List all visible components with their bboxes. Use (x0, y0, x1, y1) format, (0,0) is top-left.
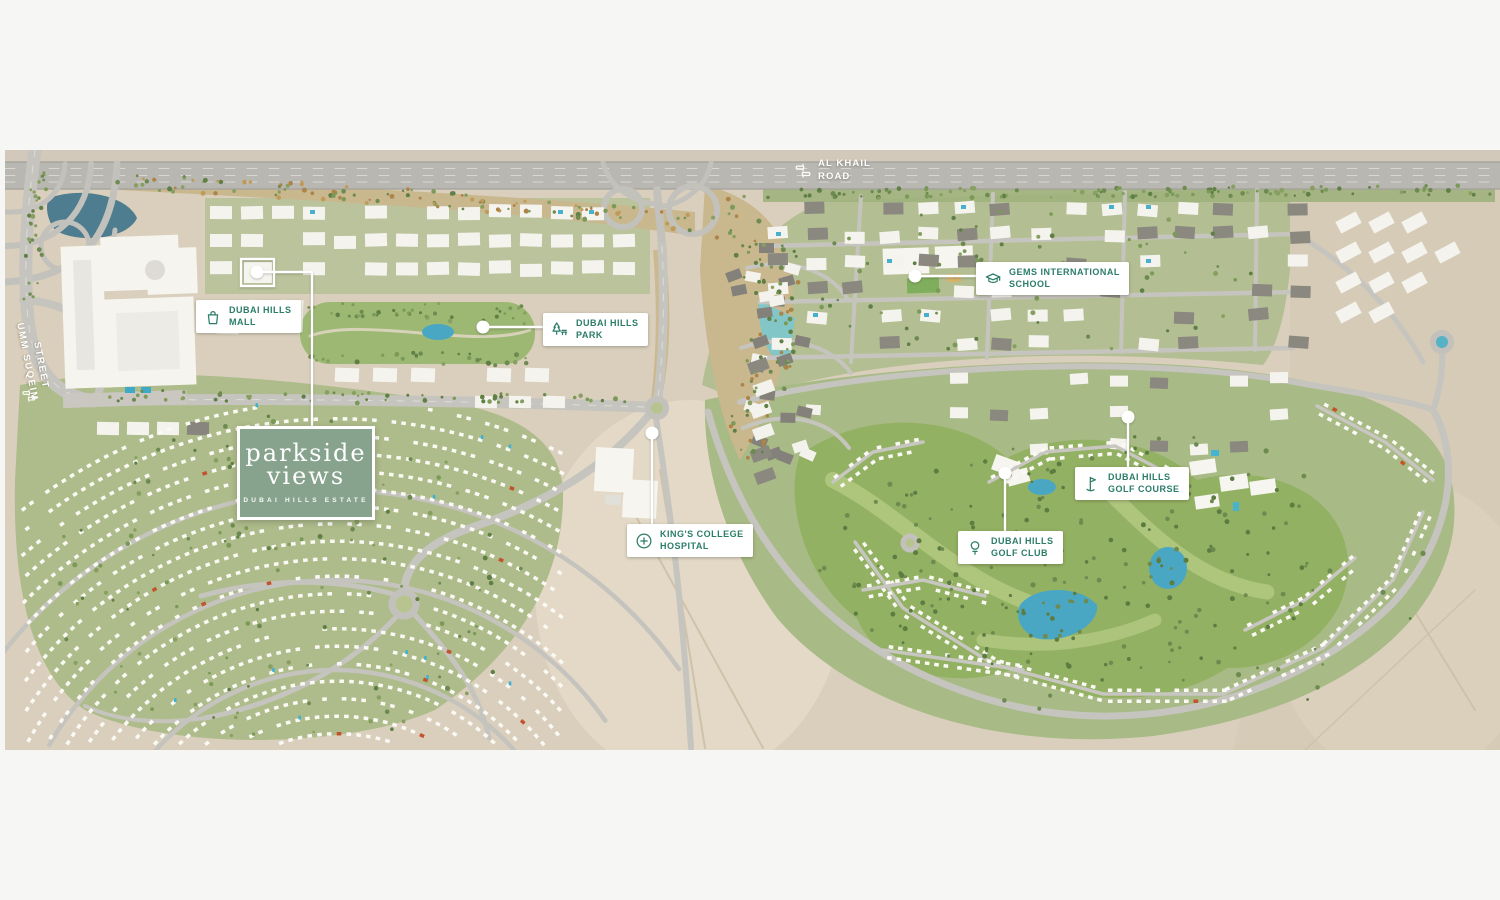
highway-icon (794, 162, 812, 180)
label-text: GEMS INTERNATIONAL (1009, 267, 1120, 279)
label-text: KING'S COLLEGE (660, 529, 744, 541)
label-text: HOSPITAL (660, 541, 744, 553)
golf-flag-icon (1082, 474, 1102, 494)
label-dubai-hills-golf-course: DUBAI HILLSGOLF COURSE (1075, 467, 1189, 500)
highway-icon (21, 388, 37, 404)
masterplan-map: DUBAI HILLSMALL DUBAI HILLSPARK GEMS INT… (5, 150, 1500, 750)
label-text: GOLF COURSE (1108, 484, 1180, 496)
label-text: DUBAI HILLS (229, 305, 292, 317)
medical-cross-icon (634, 531, 654, 551)
label-text: DUBAI HILLS (576, 318, 639, 330)
label-al-khail-road: AL KHAILROAD (794, 158, 871, 184)
label-kings-college-hospital: KING'S COLLEGEHOSPITAL (627, 524, 753, 557)
label-text: GOLF CLUB (991, 548, 1054, 560)
label-dubai-hills-park: DUBAI HILLSPARK (543, 313, 648, 346)
road-label-text: ROAD (818, 171, 871, 184)
label-text: SCHOOL (1009, 279, 1120, 291)
golf-ball-icon (965, 538, 985, 558)
brand-subtitle: DUBAI HILLS ESTATE (243, 497, 368, 504)
label-dubai-hills-golf-club: DUBAI HILLSGOLF CLUB (958, 531, 1063, 564)
brand-wordmark-line2: views (267, 465, 345, 488)
masterplan-page: DUBAI HILLSMALL DUBAI HILLSPARK GEMS INT… (0, 0, 1500, 900)
shopping-bag-icon (203, 307, 223, 327)
label-gems-international-school: GEMS INTERNATIONALSCHOOL (976, 262, 1129, 295)
graduation-cap-icon (983, 269, 1003, 289)
label-dubai-hills-mall: DUBAI HILLSMALL (196, 300, 301, 333)
park-tree-icon (550, 320, 570, 340)
road-label-text: AL KHAIL (818, 158, 871, 171)
parkside-views-logo: parkside views DUBAI HILLS ESTATE (237, 426, 375, 520)
label-text: MALL (229, 317, 292, 329)
label-text: PARK (576, 330, 639, 342)
label-text: DUBAI HILLS (991, 536, 1054, 548)
map-artwork (5, 150, 1500, 750)
label-text: DUBAI HILLS (1108, 472, 1180, 484)
